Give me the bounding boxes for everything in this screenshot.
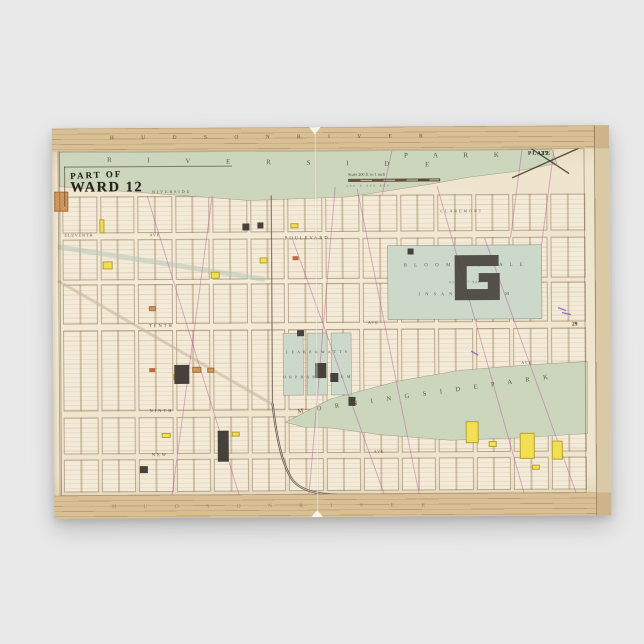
city-block bbox=[251, 416, 285, 453]
bloomingdale-asylum-label-line2: I N S A N E A S Y L U M bbox=[388, 291, 542, 297]
city-block bbox=[438, 328, 473, 409]
city-block bbox=[551, 327, 586, 408]
city-block bbox=[138, 459, 173, 492]
scale-bar bbox=[348, 178, 440, 182]
city-block bbox=[175, 239, 209, 280]
frame-building bbox=[162, 433, 171, 438]
bloomingdale-asylum-label-line1: B L O O M I N G D A L E bbox=[388, 263, 542, 269]
city-block bbox=[438, 457, 473, 490]
street-label: RIVERSIDE bbox=[152, 189, 191, 194]
city-block bbox=[325, 283, 359, 323]
title-bracket-line bbox=[64, 166, 232, 168]
city-block bbox=[550, 236, 585, 277]
street-label: ELEVENTH bbox=[64, 232, 93, 237]
city-block bbox=[400, 282, 434, 322]
sheet-right-margin bbox=[594, 125, 611, 515]
frame-building bbox=[520, 433, 535, 459]
street-label: BOULEVARD bbox=[284, 235, 329, 240]
city-block bbox=[512, 237, 547, 278]
city-block bbox=[400, 237, 434, 278]
city-block bbox=[362, 195, 397, 232]
city-block bbox=[62, 239, 97, 280]
street-label: NEW bbox=[152, 452, 168, 457]
stone-building bbox=[257, 222, 263, 228]
map-title-line2: WARD 12 bbox=[70, 179, 143, 196]
city-block bbox=[475, 237, 509, 278]
small-building bbox=[149, 368, 155, 372]
city-block bbox=[137, 239, 172, 280]
frame-building bbox=[232, 432, 240, 437]
city-block bbox=[326, 416, 360, 453]
frame-building bbox=[489, 441, 497, 447]
hudson-river-label: H U D S O N R I V E R bbox=[110, 133, 436, 141]
city-block bbox=[63, 330, 98, 411]
brick-building bbox=[149, 306, 156, 311]
city-block bbox=[250, 283, 284, 323]
city-block bbox=[251, 329, 285, 410]
page-background: R I V E R S I D E P A R K M O R N I N G … bbox=[0, 0, 644, 644]
city-block bbox=[175, 196, 209, 233]
hudson-river-band: H U D S O N R I V E R bbox=[52, 125, 609, 151]
stone-building bbox=[297, 330, 304, 336]
bottom-margin-band: H U D S O N R I V E R bbox=[54, 492, 611, 518]
stone-building bbox=[174, 365, 189, 384]
adjacent-plate-reference: 29 bbox=[572, 321, 578, 327]
city-block bbox=[101, 330, 135, 411]
stone-building bbox=[408, 248, 414, 254]
city-block bbox=[175, 284, 209, 324]
city-block bbox=[362, 283, 397, 323]
title-bracket-line bbox=[64, 167, 65, 207]
scale-bar-numbers: 400 0 400 800 bbox=[346, 184, 390, 188]
atlas-map-image[interactable]: R I V E R S I D E P A R K M O R N I N G … bbox=[52, 125, 611, 518]
city-block bbox=[325, 195, 359, 232]
city-block bbox=[137, 284, 172, 324]
street-label: AVE bbox=[368, 320, 379, 325]
city-block bbox=[100, 284, 134, 324]
city-block bbox=[512, 282, 547, 322]
city-block bbox=[325, 238, 359, 279]
city-block bbox=[512, 194, 547, 231]
city-block bbox=[513, 328, 548, 409]
city-block bbox=[176, 459, 210, 492]
stone-building bbox=[140, 466, 148, 473]
stone-building bbox=[242, 223, 249, 230]
city-block bbox=[476, 328, 510, 409]
bottom-margin-letters: H U D S O N R I V E R bbox=[112, 502, 438, 510]
city-block bbox=[62, 284, 97, 324]
plate-number: 25. bbox=[541, 151, 551, 157]
street-label: AVE bbox=[374, 449, 385, 454]
frame-building bbox=[99, 219, 104, 233]
city-block bbox=[63, 459, 98, 492]
city-block bbox=[550, 281, 585, 321]
city-block bbox=[437, 282, 472, 322]
city-block bbox=[362, 238, 397, 279]
city-block bbox=[63, 417, 98, 454]
street-label: AVE bbox=[149, 232, 160, 237]
city-block bbox=[513, 457, 548, 490]
city-block bbox=[437, 237, 472, 278]
frame-building bbox=[103, 261, 113, 269]
city-block bbox=[251, 458, 285, 491]
map-title: PART OF WARD 12 bbox=[70, 169, 143, 196]
brick-building bbox=[192, 367, 201, 373]
frame-building bbox=[290, 223, 298, 228]
city-block bbox=[401, 457, 435, 490]
frame-building bbox=[260, 257, 268, 263]
street-label: AVE bbox=[521, 360, 532, 365]
city-block bbox=[476, 457, 510, 490]
city-block bbox=[363, 458, 398, 491]
street-label: CLAREMONT bbox=[440, 208, 483, 213]
city-block bbox=[363, 416, 398, 453]
city-block bbox=[250, 195, 284, 232]
city-block bbox=[400, 194, 434, 231]
city-block bbox=[101, 417, 135, 454]
city-block bbox=[475, 282, 509, 322]
city-block bbox=[137, 196, 172, 233]
stone-building bbox=[218, 431, 229, 462]
riverside-park-word-label: P A R K bbox=[404, 151, 511, 160]
city-block bbox=[401, 415, 435, 452]
city-block bbox=[176, 417, 210, 454]
city-block bbox=[550, 193, 585, 230]
street-label: NINTH bbox=[150, 408, 174, 413]
street-label: TENTH bbox=[149, 323, 174, 328]
small-building bbox=[293, 256, 299, 260]
city-block bbox=[212, 284, 247, 324]
frame-building bbox=[466, 421, 479, 443]
brick-building bbox=[207, 368, 214, 373]
frame-building bbox=[552, 441, 563, 460]
city-block bbox=[100, 196, 134, 233]
city-block bbox=[101, 459, 135, 492]
city-block bbox=[551, 456, 586, 489]
city-block bbox=[100, 239, 134, 280]
frame-building bbox=[211, 272, 220, 279]
city-block bbox=[213, 459, 248, 492]
scale-text: Scale 200 ft. to 1 inch bbox=[348, 172, 385, 177]
city-block bbox=[213, 330, 248, 411]
city-block bbox=[326, 458, 360, 491]
frame-building bbox=[532, 465, 540, 470]
